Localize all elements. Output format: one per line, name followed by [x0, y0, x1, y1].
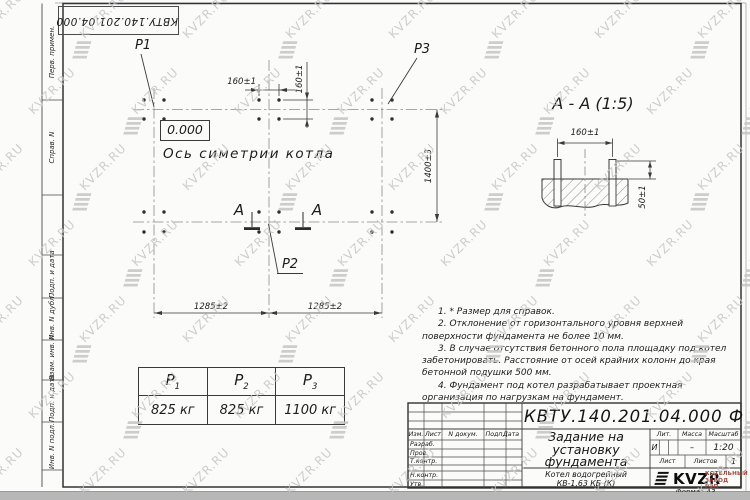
dim-bolt-protrusion: 50±1 — [638, 177, 648, 217]
title-line-3: фундамента — [522, 456, 650, 469]
load-value-p2: 825 кг — [207, 396, 276, 425]
col-header-doc: N докум. — [442, 431, 484, 438]
note-3: 3. В случае отсутствия бетонного пола пл… — [422, 343, 740, 380]
row-label-prov: Пров. — [410, 450, 428, 457]
load-table-header-p1: P1 — [139, 368, 208, 396]
load-table: P1 P2 P3 825 кг 825 кг 1100 кг — [138, 367, 345, 425]
dim-bolt-spacing-horizontal: 160±1 — [208, 77, 256, 87]
load-value-p1: 825 кг — [139, 396, 208, 425]
sheet-label: Лист — [650, 458, 685, 465]
title-block-document-title: Задание на установку фундамента — [522, 431, 650, 469]
mass-header: Масса — [678, 431, 706, 438]
load-value-p3: 1100 кг — [276, 396, 345, 425]
lit-value: И — [650, 443, 659, 452]
section-cut-letter-right: А — [307, 201, 327, 219]
margin-label-inv-dubl: Инв. N дубл. — [42, 298, 63, 340]
sheets-value: 1 — [726, 457, 741, 466]
row-label-nkontr: Н.контр. — [410, 472, 438, 479]
page-bottom-edge — [0, 492, 750, 500]
boiler-symmetry-axis-label: Ось симетрии котла — [163, 146, 334, 162]
scale-value: 1:20 — [706, 443, 741, 453]
col-header-list: Лист — [423, 431, 443, 438]
note-4: 4. Фундамент под котел разрабатывает про… — [422, 380, 740, 405]
elevation-value: 0.000 — [161, 121, 209, 139]
load-table-value-row: 825 кг 825 кг 1100 кг — [139, 396, 345, 425]
top-stamp-box: КВТУ.140.201.04.000 Ф — [58, 6, 179, 35]
elevation-mark: 0.000 — [160, 120, 210, 141]
title-block-doc-number: КВТУ.140.201.04.000 Ф — [524, 404, 739, 429]
dim-bolt-spacing-vertical: 160±1 — [295, 59, 305, 99]
margin-label-podp-data-1: Подп. и дата — [42, 255, 63, 298]
product-name: Котел водогрейный КВ-1,63 КБ (К) — [522, 470, 650, 488]
technical-notes: 1. * Размер для справок. 2. Отклонение о… — [422, 306, 740, 404]
top-stamp-number: КВТУ.140.201.04.000 Ф — [59, 7, 178, 34]
col-header-data: Дата — [500, 431, 522, 438]
product-line-2: КВ-1,63 КБ (К) — [522, 479, 650, 488]
load-point-p3-label: P3 — [409, 42, 435, 57]
scale-header: Масштаб — [706, 431, 741, 438]
load-point-p1-label: P1 — [130, 38, 156, 53]
lit-header: Лит. — [650, 431, 678, 438]
note-2: 2. Отклонение от горизонтального уровня … — [422, 318, 740, 343]
row-label-razrab: Разраб. — [410, 441, 435, 448]
row-label-tkontr: Т.контр. — [410, 458, 437, 465]
load-table-header-p2: P2 — [207, 368, 276, 396]
load-point-p2-label: P2 — [277, 257, 303, 272]
section-cut-letter-left: А — [229, 201, 249, 219]
dim-foundation-width: 1400±3 — [424, 141, 434, 191]
row-label-utv: Утв. — [410, 481, 423, 488]
margin-label-perv-primen: Перв. примен. — [42, 4, 63, 100]
margin-label-inv-podl: Инв. N подл. — [42, 422, 63, 470]
product-line-1: Котел водогрейный — [522, 470, 650, 479]
note-1: 1. * Размер для справок. — [422, 306, 740, 318]
load-table-header-row: P1 P2 P3 — [139, 368, 345, 396]
mass-value: – — [678, 443, 706, 452]
drawing-sheet: КВТУ.140.201.04.000 Ф Перв. примен. Спра… — [0, 0, 750, 500]
company-line-1: КОТЕЛЬНЫЙ — [705, 471, 741, 478]
margin-label-sprav-n: Справ. N — [42, 100, 63, 195]
dim-section-bolt-spacing: 160±1 — [560, 128, 610, 138]
sheets-label: Листов — [685, 458, 726, 465]
load-table-header-p3: P3 — [276, 368, 345, 396]
dim-span-right: 1285±2 — [285, 302, 365, 312]
margin-label-podp-data-2: Подп. и дата — [42, 380, 63, 422]
dim-span-left: 1285±2 — [171, 302, 251, 312]
section-view-title: А - А (1:5) — [533, 94, 653, 113]
